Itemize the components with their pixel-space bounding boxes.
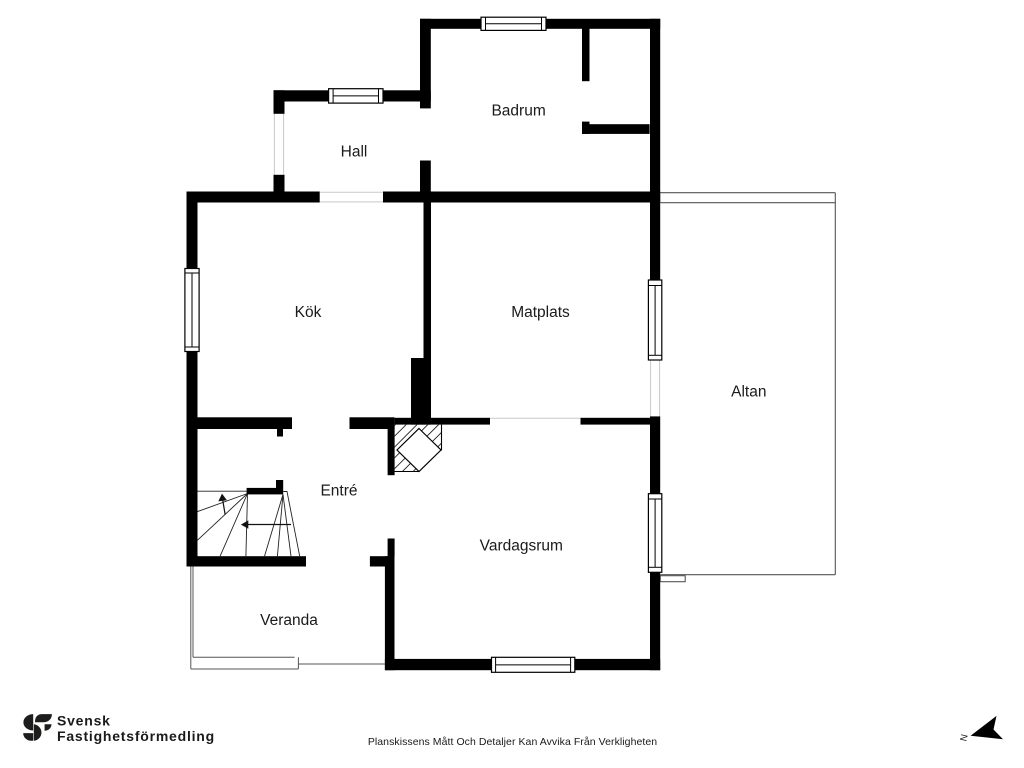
svg-text:Vardagsrum: Vardagsrum: [480, 537, 563, 554]
svg-text:Matplats: Matplats: [511, 304, 570, 321]
svg-text:Planskissens Mått Och Detaljer: Planskissens Mått Och Detaljer Kan Avvik…: [368, 736, 657, 748]
svg-text:Fastighetsförmedling: Fastighetsförmedling: [57, 728, 215, 744]
svg-text:Hall: Hall: [341, 144, 368, 161]
svg-text:Veranda: Veranda: [260, 612, 318, 629]
svg-text:Altan: Altan: [731, 384, 766, 401]
svg-text:Badrum: Badrum: [491, 103, 545, 120]
svg-text:Svensk: Svensk: [57, 713, 111, 729]
svg-text:Entré: Entré: [320, 483, 357, 500]
svg-text:Kök: Kök: [295, 304, 322, 321]
